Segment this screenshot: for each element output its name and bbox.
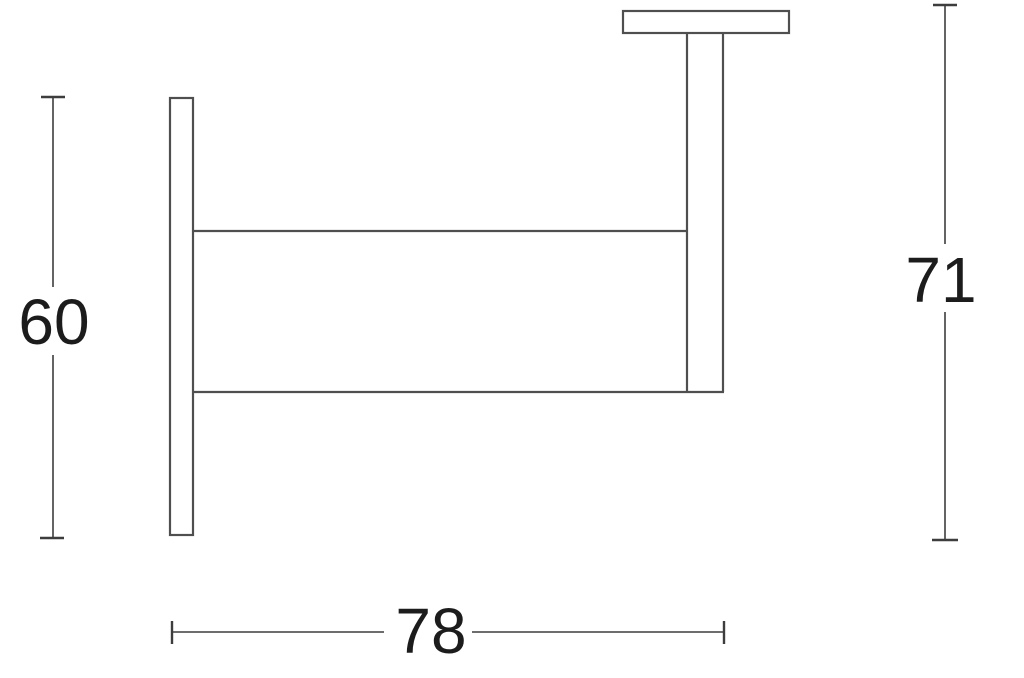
dim-label-overall-width: 78	[395, 595, 466, 667]
wall-plate	[170, 98, 193, 535]
dim-label-plate-height: 60	[18, 286, 89, 358]
bracket-outline	[170, 11, 789, 535]
dimension-overall-width: 78	[172, 595, 724, 667]
technical-drawing: 60 71 78	[0, 0, 1024, 678]
dimension-plate-height: 60	[18, 97, 89, 538]
drawing-canvas: 60 71 78	[0, 0, 1024, 678]
dimension-overall-height: 71	[905, 5, 976, 540]
dim-label-overall-height: 71	[905, 244, 976, 316]
top-mount-plate	[623, 11, 789, 33]
